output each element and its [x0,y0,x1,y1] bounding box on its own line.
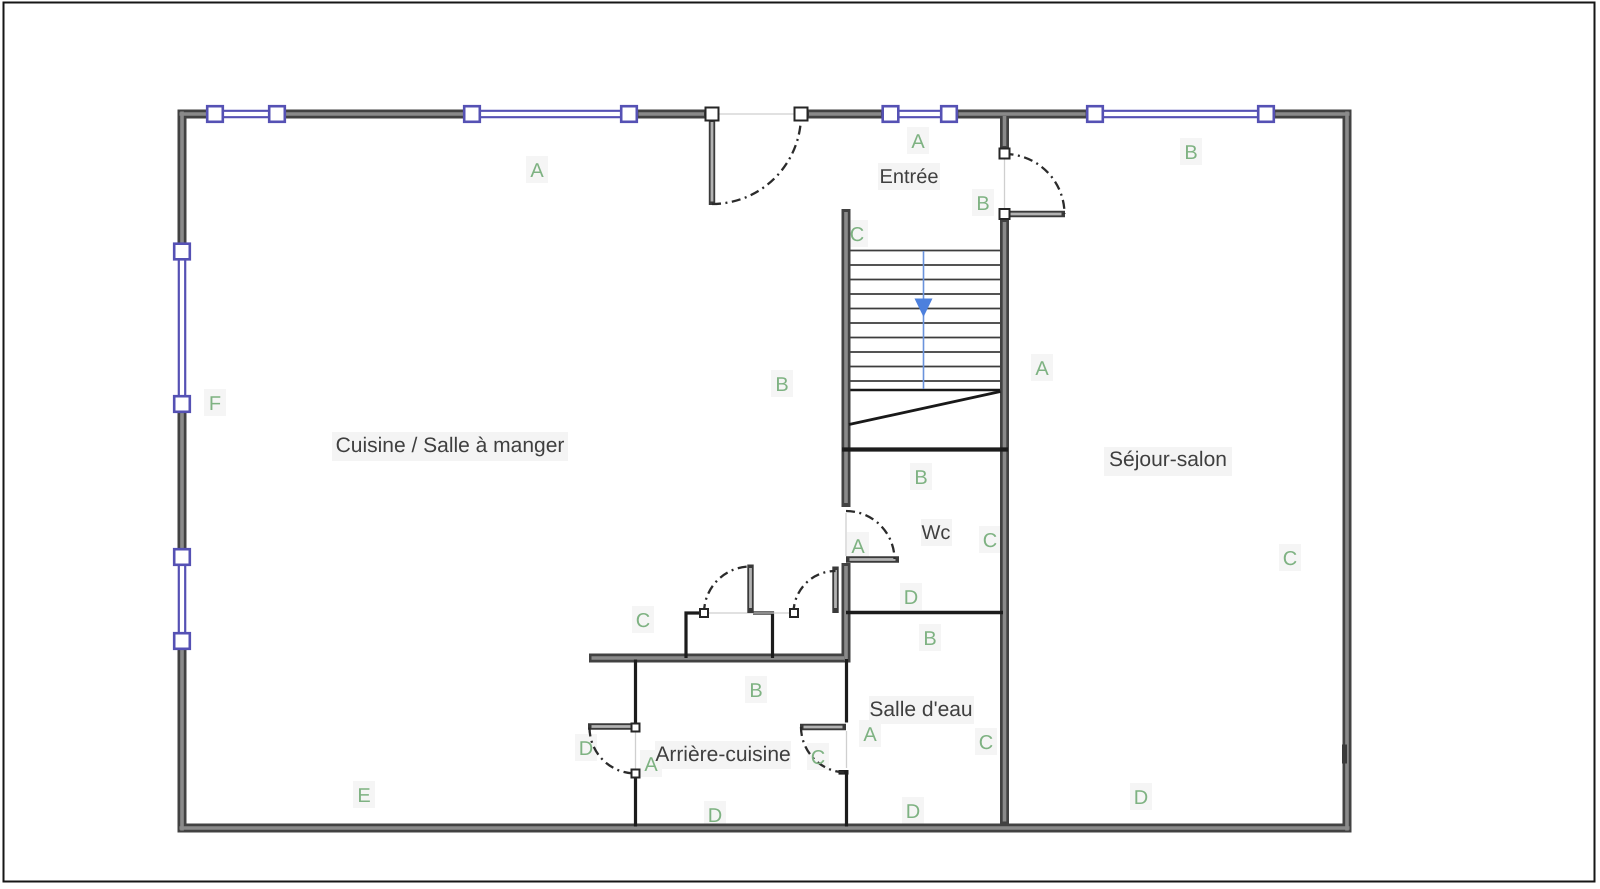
svg-text:B: B [749,680,762,702]
svg-text:D: D [708,805,722,827]
svg-text:E: E [357,785,370,807]
svg-text:A: A [863,724,877,746]
svg-text:C: C [850,224,864,246]
svg-text:Séjour-salon: Séjour-salon [1109,448,1227,471]
svg-text:Entrée: Entrée [880,166,939,188]
svg-text:C: C [811,747,825,769]
svg-text:Salle d'eau: Salle d'eau [869,698,972,721]
svg-text:B: B [923,628,936,650]
svg-text:A: A [1035,358,1049,380]
svg-text:A: A [644,754,658,776]
svg-text:D: D [904,587,918,609]
svg-text:B: B [914,467,927,489]
svg-text:C: C [1283,548,1297,570]
svg-text:C: C [983,530,997,552]
svg-text:Cuisine / Salle à manger: Cuisine / Salle à manger [336,434,565,457]
svg-text:B: B [775,374,788,396]
svg-text:Arrière-cuisine: Arrière-cuisine [655,743,790,766]
svg-text:C: C [979,732,993,754]
svg-text:C: C [636,610,650,632]
svg-text:A: A [851,536,865,558]
svg-text:D: D [1134,787,1148,809]
svg-text:B: B [1184,142,1197,164]
svg-text:Wc: Wc [922,522,951,544]
svg-text:A: A [530,160,544,182]
svg-text:D: D [906,801,920,823]
svg-text:B: B [976,193,989,215]
svg-text:A: A [911,131,925,153]
svg-text:D: D [579,738,593,760]
svg-text:F: F [209,393,221,415]
